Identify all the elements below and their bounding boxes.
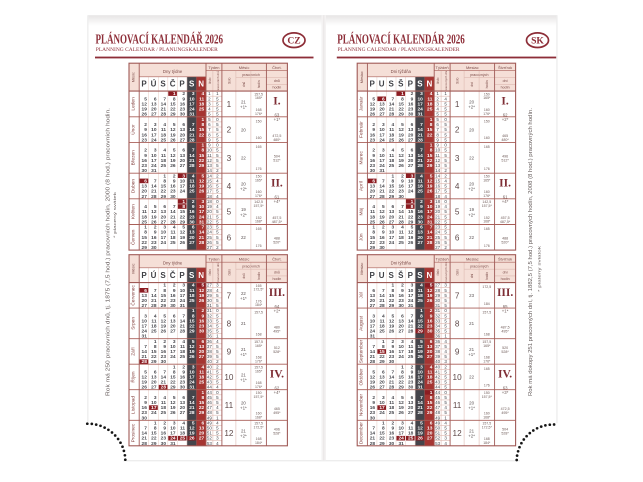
svg-text:26: 26	[417, 354, 423, 360]
svg-text:12: 12	[379, 209, 385, 215]
svg-text:20: 20	[180, 132, 186, 138]
svg-text:17: 17	[180, 184, 186, 190]
svg-text:22: 22	[469, 375, 474, 380]
svg-text:2: 2	[420, 199, 423, 205]
svg-text:26: 26	[389, 329, 395, 335]
svg-text:4: 4	[182, 420, 185, 426]
svg-text:S: S	[389, 271, 395, 280]
svg-text:21: 21	[199, 235, 205, 241]
svg-text:176*: 176*	[255, 112, 263, 116]
svg-text:15: 15	[389, 184, 395, 190]
svg-text:29: 29	[199, 410, 205, 416]
svg-text:17: 17	[170, 431, 176, 437]
svg-text:5: 5	[192, 420, 195, 426]
svg-text:hodin: hodin	[257, 272, 261, 280]
svg-text:14: 14	[199, 230, 205, 236]
svg-text:168*: 168*	[255, 415, 263, 419]
svg-text:11: 11	[199, 96, 204, 102]
svg-text:12: 12	[370, 102, 376, 108]
svg-text:22: 22	[170, 380, 176, 386]
svg-text:dnů: dnů	[242, 82, 246, 88]
svg-text:Štvrťrok: Štvrťrok	[498, 256, 512, 261]
svg-text:8: 8	[154, 344, 157, 350]
svg-text:3: 3	[192, 364, 195, 370]
svg-text:24: 24	[427, 214, 433, 220]
svg-text:19: 19	[427, 293, 433, 299]
svg-text:14: 14	[417, 127, 423, 133]
svg-text:hodin: hodin	[273, 277, 282, 281]
svg-text:14: 14	[370, 349, 376, 355]
svg-text:SK: SK	[531, 36, 544, 47]
svg-text:21: 21	[142, 436, 148, 442]
svg-text:26: 26	[189, 354, 195, 360]
svg-text:Č: Č	[170, 271, 176, 280]
svg-text:5: 5	[173, 148, 176, 154]
svg-text:N: N	[198, 271, 204, 280]
svg-text:25: 25	[199, 380, 205, 386]
svg-text:15: 15	[170, 102, 176, 108]
svg-text:18: 18	[170, 235, 176, 241]
svg-text:8: 8	[392, 178, 395, 184]
svg-text:22: 22	[379, 354, 385, 360]
svg-text:13: 13	[199, 344, 205, 350]
svg-text:24: 24	[370, 329, 376, 335]
svg-text:528*: 528*	[501, 432, 509, 436]
svg-text:číslo: číslo	[227, 77, 231, 84]
svg-text:21: 21	[189, 132, 195, 138]
svg-text:20: 20	[427, 349, 433, 355]
svg-text:3: 3	[401, 339, 404, 345]
svg-text:18: 18	[389, 158, 395, 164]
svg-text:11: 11	[161, 400, 166, 406]
svg-text:20: 20	[161, 214, 167, 220]
svg-text:21: 21	[379, 189, 385, 195]
svg-text:12: 12	[170, 400, 176, 406]
svg-text:25: 25	[427, 107, 433, 113]
svg-text:1: 1	[411, 199, 414, 205]
svg-text:P: P	[179, 80, 185, 89]
svg-text:9: 9	[173, 288, 176, 294]
svg-text:14: 14	[417, 400, 423, 406]
svg-text:165*: 165*	[255, 369, 263, 373]
svg-text:+3*: +3*	[502, 390, 509, 395]
svg-text:15: 15	[151, 431, 157, 437]
svg-text:S: S	[189, 271, 195, 280]
svg-text:8: 8	[173, 96, 176, 102]
svg-text:7: 7	[163, 96, 166, 102]
svg-text:1: 1	[382, 339, 385, 345]
svg-text:16: 16	[417, 209, 423, 215]
svg-text:3: 3	[420, 364, 423, 370]
svg-text:18: 18	[427, 102, 433, 108]
svg-text:20: 20	[180, 405, 186, 411]
svg-text:6: 6	[372, 178, 375, 184]
svg-text:20: 20	[370, 189, 376, 195]
svg-text:27: 27	[427, 436, 433, 442]
svg-text:21: 21	[417, 132, 423, 138]
svg-text:23: 23	[417, 214, 423, 220]
svg-text:+1*: +1*	[274, 117, 281, 122]
svg-text:7: 7	[401, 204, 404, 210]
svg-text:Měsíc: Měsíc	[239, 256, 250, 261]
svg-text:3: 3	[202, 199, 205, 205]
svg-text:172,5: 172,5	[482, 285, 491, 289]
svg-text:IV.: IV.	[498, 369, 512, 381]
svg-text:22: 22	[408, 214, 414, 220]
svg-text:4: 4	[202, 364, 205, 370]
svg-text:28: 28	[199, 240, 205, 246]
svg-text:165: 165	[484, 145, 490, 149]
svg-text:16: 16	[427, 318, 433, 324]
svg-text:25: 25	[417, 189, 423, 195]
svg-text:Rok má 250 pracovních dnů, tj.: Rok má 250 pracovních dnů, tj. 1875 (7,5…	[105, 108, 112, 396]
svg-text:22: 22	[427, 132, 433, 138]
svg-text:7: 7	[411, 313, 414, 319]
svg-text:165*: 165*	[255, 96, 263, 100]
svg-text:1: 1	[173, 91, 176, 97]
svg-text:N: N	[198, 80, 204, 89]
svg-text:25: 25	[408, 436, 414, 442]
svg-text:8: 8	[430, 148, 433, 154]
svg-text:17: 17	[417, 375, 423, 381]
svg-text:Mesiac: Mesiac	[466, 65, 479, 70]
svg-text:19: 19	[161, 324, 167, 330]
svg-text:172,5*: 172,5*	[254, 288, 265, 292]
svg-text:+1*: +1*	[240, 105, 247, 110]
svg-text:15: 15	[427, 400, 433, 406]
svg-text:2: 2	[144, 395, 147, 401]
svg-text:4: 4	[392, 148, 395, 154]
svg-text:29: 29	[427, 163, 433, 169]
svg-text:9: 9	[430, 313, 433, 319]
svg-text:Leden: Leden	[131, 97, 137, 111]
svg-text:5: 5	[372, 369, 375, 375]
svg-text:číslo: číslo	[456, 269, 460, 276]
svg-text:23: 23	[379, 240, 385, 246]
svg-text:PLÁNOVACÍ KALENDÁR 2026: PLÁNOVACÍ KALENDÁR 2026	[337, 31, 465, 46]
svg-text:+2*: +2*	[240, 434, 247, 439]
svg-text:18: 18	[408, 349, 414, 355]
svg-text:27: 27	[408, 163, 414, 169]
svg-text:1: 1	[401, 91, 404, 97]
svg-text:12: 12	[189, 344, 195, 350]
svg-text:15: 15	[379, 349, 385, 355]
svg-text:Mesiac: Mesiac	[360, 262, 364, 274]
svg-text:23: 23	[408, 107, 414, 113]
svg-text:November: November	[359, 394, 365, 417]
svg-text:+2*: +2*	[502, 117, 509, 122]
svg-text:2: 2	[192, 199, 195, 205]
svg-text:7: 7	[382, 288, 385, 294]
svg-text:22: 22	[189, 324, 195, 330]
svg-text:9: 9	[144, 400, 147, 406]
svg-text:16: 16	[389, 431, 395, 437]
svg-text:12: 12	[142, 375, 148, 381]
svg-text:19: 19	[370, 107, 376, 113]
svg-text:512*: 512*	[501, 159, 509, 163]
svg-text:+2*: +2*	[468, 105, 475, 110]
svg-text:21: 21	[370, 354, 376, 360]
svg-text:12: 12	[370, 375, 376, 381]
svg-text:24: 24	[161, 240, 167, 246]
svg-text:10: 10	[389, 230, 395, 236]
svg-text:dnů: dnů	[242, 273, 246, 279]
svg-text:20: 20	[180, 158, 186, 164]
svg-text:14: 14	[161, 375, 167, 381]
svg-text:16: 16	[389, 349, 395, 355]
svg-text:3: 3	[227, 154, 232, 163]
svg-text:25: 25	[170, 240, 176, 246]
svg-text:12: 12	[427, 288, 433, 294]
svg-text:14: 14	[161, 102, 167, 108]
svg-text:18: 18	[417, 293, 423, 299]
svg-text:6: 6	[202, 339, 205, 345]
svg-text:3: 3	[192, 91, 195, 97]
svg-text:8: 8	[144, 230, 147, 236]
svg-text:Čtvrt.: Čtvrt.	[272, 256, 282, 261]
svg-text:IV.: IV.	[270, 369, 284, 381]
svg-text:7: 7	[420, 395, 423, 401]
svg-text:13: 13	[170, 318, 176, 324]
svg-text:15: 15	[170, 375, 176, 381]
svg-text:157,5: 157,5	[482, 311, 491, 315]
svg-text:Týden: Týden	[208, 256, 219, 261]
svg-text:22: 22	[370, 240, 376, 246]
svg-text:14: 14	[151, 293, 157, 299]
svg-text:24: 24	[189, 380, 195, 386]
svg-text:1: 1	[455, 100, 460, 109]
svg-text:27: 27	[427, 354, 433, 360]
svg-text:27: 27	[170, 329, 176, 335]
svg-text:5: 5	[192, 339, 195, 345]
svg-text:22: 22	[199, 132, 205, 138]
svg-text:20: 20	[379, 380, 385, 386]
svg-text:S: S	[389, 80, 395, 89]
svg-text:520*: 520*	[273, 241, 281, 245]
svg-text:23: 23	[389, 436, 395, 442]
svg-text:1: 1	[382, 420, 385, 426]
svg-text:4: 4	[182, 339, 185, 345]
svg-text:3: 3	[182, 173, 185, 179]
svg-text:2: 2	[173, 283, 176, 289]
svg-text:16: 16	[408, 375, 414, 381]
svg-text:26: 26	[408, 240, 414, 246]
svg-text:+1*: +1*	[240, 296, 247, 301]
svg-text:5: 5	[430, 173, 433, 179]
svg-text:16: 16	[370, 132, 376, 138]
svg-text:12: 12	[170, 153, 176, 159]
svg-text:dnů: dnů	[274, 79, 280, 83]
svg-text:9: 9	[372, 153, 375, 159]
svg-text:13: 13	[142, 184, 148, 190]
svg-text:Mesiac: Mesiac	[466, 256, 479, 261]
svg-text:14: 14	[170, 209, 176, 215]
svg-text:168*: 168*	[483, 415, 491, 419]
svg-text:23: 23	[161, 436, 167, 442]
svg-text:22: 22	[469, 156, 474, 161]
svg-text:13: 13	[370, 293, 376, 299]
svg-text:21: 21	[389, 107, 395, 113]
svg-text:4: 4	[392, 395, 395, 401]
svg-text:165*: 165*	[255, 178, 263, 182]
svg-text:28: 28	[417, 410, 423, 416]
svg-text:28: 28	[189, 163, 195, 169]
svg-text:+4*: +4*	[274, 390, 281, 395]
svg-text:5: 5	[144, 369, 147, 375]
svg-text:4: 4	[192, 283, 195, 289]
svg-text:28: 28	[408, 329, 414, 335]
svg-text:16: 16	[379, 235, 385, 241]
svg-text:+4*: +4*	[274, 199, 281, 204]
svg-text:23: 23	[427, 324, 433, 330]
svg-text:4: 4	[227, 182, 232, 191]
svg-text:17: 17	[398, 349, 404, 355]
svg-text:9: 9	[401, 288, 404, 294]
svg-text:25: 25	[199, 107, 205, 113]
svg-text:12: 12	[161, 318, 167, 324]
svg-text:17: 17	[417, 102, 423, 108]
svg-text:15: 15	[199, 400, 205, 406]
svg-text:22: 22	[398, 380, 404, 386]
svg-text:13: 13	[427, 344, 433, 350]
svg-text:13: 13	[142, 293, 148, 299]
svg-text:11: 11	[408, 426, 413, 432]
svg-text:20: 20	[398, 324, 404, 330]
svg-text:165*: 165*	[483, 96, 491, 100]
svg-text:7: 7	[173, 204, 176, 210]
svg-text:21: 21	[398, 214, 404, 220]
svg-text:16: 16	[170, 184, 176, 190]
svg-text:hodín: hodín	[501, 277, 510, 281]
svg-text:15: 15	[408, 209, 414, 215]
svg-text:3: 3	[372, 313, 375, 319]
svg-text:13: 13	[370, 184, 376, 190]
svg-text:6: 6	[430, 420, 433, 426]
svg-text:8: 8	[420, 313, 423, 319]
svg-text:16: 16	[199, 318, 205, 324]
svg-text:+1*: +1*	[502, 309, 509, 314]
svg-text:168: 168	[256, 333, 262, 337]
svg-text:176*: 176*	[483, 112, 491, 116]
svg-text:4: 4	[173, 225, 176, 231]
svg-text:8: 8	[382, 344, 385, 350]
svg-text:1: 1	[430, 143, 433, 149]
svg-text:19: 19	[142, 107, 148, 113]
svg-text:číslo: číslo	[208, 269, 212, 276]
svg-text:4: 4	[154, 313, 157, 319]
svg-text:16: 16	[142, 132, 148, 138]
svg-text:+2*: +2*	[274, 309, 281, 314]
svg-text:2: 2	[182, 91, 185, 97]
svg-text:15: 15	[199, 153, 205, 159]
svg-text:3: 3	[392, 225, 395, 231]
svg-text:23: 23	[142, 410, 148, 416]
svg-text:19: 19	[408, 235, 414, 241]
svg-text:Měsíc: Měsíc	[132, 72, 136, 82]
svg-text:13: 13	[398, 318, 404, 324]
svg-text:7: 7	[202, 225, 205, 231]
svg-text:24: 24	[417, 107, 423, 113]
svg-text:15: 15	[151, 349, 157, 355]
svg-text:26: 26	[170, 410, 176, 416]
svg-text:26: 26	[427, 189, 433, 195]
svg-text:11: 11	[418, 288, 423, 294]
svg-text:17: 17	[379, 405, 385, 411]
svg-text:12: 12	[417, 426, 423, 432]
svg-text:21: 21	[408, 324, 414, 330]
svg-text:8: 8	[430, 122, 433, 128]
svg-text:21: 21	[427, 235, 433, 241]
svg-text:13: 13	[379, 375, 385, 381]
svg-text:17: 17	[199, 209, 205, 215]
svg-text:150: 150	[484, 119, 490, 123]
svg-text:528*: 528*	[273, 432, 281, 436]
svg-text:II.: II.	[271, 178, 283, 190]
svg-text:9: 9	[173, 178, 176, 184]
svg-text:23: 23	[408, 380, 414, 386]
svg-text:Ú: Ú	[151, 271, 157, 280]
svg-text:18: 18	[180, 431, 186, 437]
svg-text:14: 14	[189, 153, 195, 159]
svg-text:6: 6	[411, 122, 414, 128]
svg-text:12: 12	[151, 209, 157, 215]
svg-text:August: August	[359, 315, 365, 331]
svg-text:8: 8	[163, 178, 166, 184]
svg-text:S: S	[189, 80, 195, 89]
svg-text:24: 24	[180, 298, 186, 304]
svg-text:6: 6	[455, 233, 460, 242]
svg-text:12: 12	[180, 230, 186, 236]
svg-text:25: 25	[189, 189, 195, 195]
svg-text:21: 21	[469, 321, 474, 326]
svg-text:pracovních dnů: pracovních dnů	[216, 262, 220, 283]
svg-text:11: 11	[161, 127, 166, 133]
svg-text:S: S	[417, 271, 423, 280]
svg-text:21: 21	[180, 324, 186, 330]
svg-text:PLANNING CALENDAR / PLANUNGSKA: PLANNING CALENDAR / PLANUNGSKALENDER	[338, 47, 460, 53]
svg-text:9: 9	[154, 230, 157, 236]
svg-text:8: 8	[455, 319, 460, 328]
svg-text:+1*: +1*	[240, 378, 247, 383]
svg-text:16: 16	[180, 375, 186, 381]
svg-text:22: 22	[161, 298, 167, 304]
svg-text:Január: Január	[359, 96, 365, 111]
svg-text:Březen: Březen	[131, 150, 137, 166]
svg-text:2: 2	[163, 420, 166, 426]
svg-text:25: 25	[161, 410, 167, 416]
svg-text:9: 9	[182, 96, 185, 102]
svg-text:28: 28	[180, 329, 186, 335]
svg-text:21: 21	[417, 158, 423, 164]
svg-text:5: 5	[144, 96, 147, 102]
svg-text:číslo: číslo	[436, 77, 440, 84]
svg-text:6: 6	[420, 225, 423, 231]
svg-text:11: 11	[380, 318, 385, 324]
svg-text:10: 10	[189, 96, 195, 102]
svg-text:495*: 495*	[501, 330, 509, 334]
svg-text:14: 14	[408, 318, 414, 324]
svg-text:dní: dní	[503, 271, 508, 275]
svg-text:pracovních dnů: pracovních dnů	[216, 70, 220, 91]
svg-text:184*: 184*	[255, 441, 263, 445]
svg-text:14: 14	[189, 400, 195, 406]
svg-text:24: 24	[151, 410, 157, 416]
svg-text:8: 8	[173, 369, 176, 375]
svg-text:Dny týdne: Dny týdne	[163, 260, 183, 265]
svg-text:1: 1	[154, 420, 157, 426]
svg-text:14: 14	[389, 102, 395, 108]
svg-text:184*: 184*	[483, 441, 491, 445]
